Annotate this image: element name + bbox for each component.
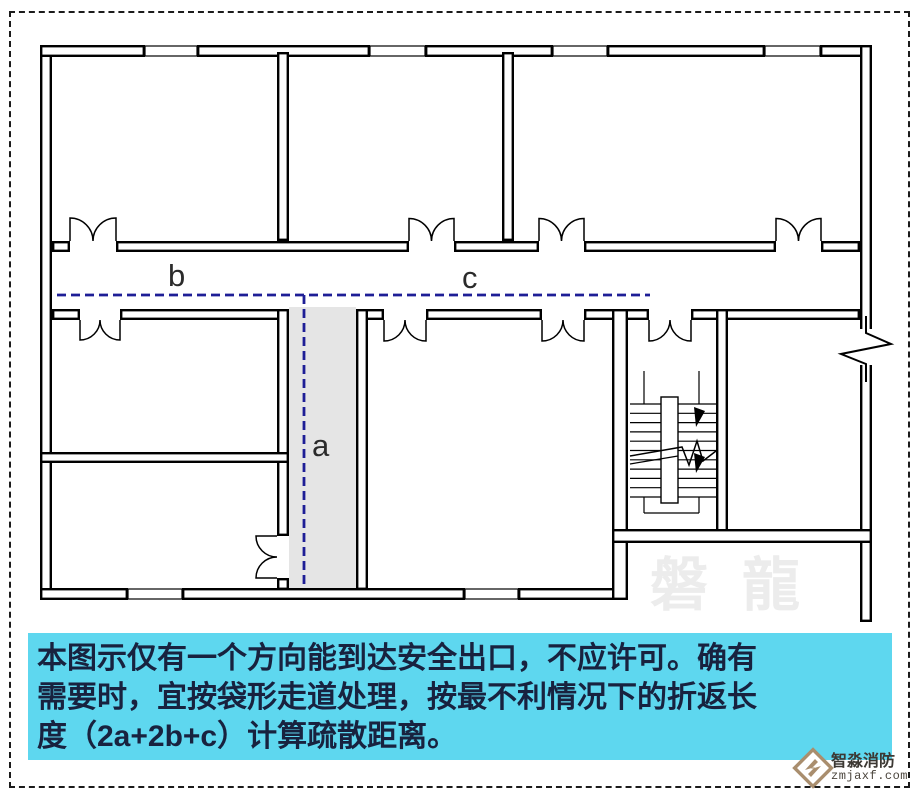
distance-label-a: a <box>312 430 329 461</box>
caption-line-3: 度（2a+2b+c）计算疏散距离。 <box>28 717 892 756</box>
distance-label-c: c <box>462 262 478 293</box>
logo-domain: zmjaxf.com <box>831 770 908 783</box>
logo-name: 智淼消防 <box>831 753 908 770</box>
caption-panel: 本图示仅有一个方向能到达安全出口，不应许可。确有 需要时，宜按袋形走道处理，按最… <box>28 633 892 760</box>
logo-diamond-icon <box>791 746 835 790</box>
watermark-panlong: 磐龍 <box>650 538 834 622</box>
caption-line-1: 本图示仅有一个方向能到达安全出口，不应许可。确有 <box>28 633 892 678</box>
caption-line-2: 需要时，宜按袋形走道处理，按最不利情况下的折返长 <box>28 678 892 717</box>
floor-plan <box>0 0 920 630</box>
logo: 智淼消防 zmjaxf.com <box>791 746 908 790</box>
fire-evacuation-diagram-page: b c a 磐龍 本图示仅有一个方向能到达安全出口，不应许可。确有 需要时，宜按… <box>0 0 920 796</box>
distance-label-b: b <box>168 260 185 291</box>
